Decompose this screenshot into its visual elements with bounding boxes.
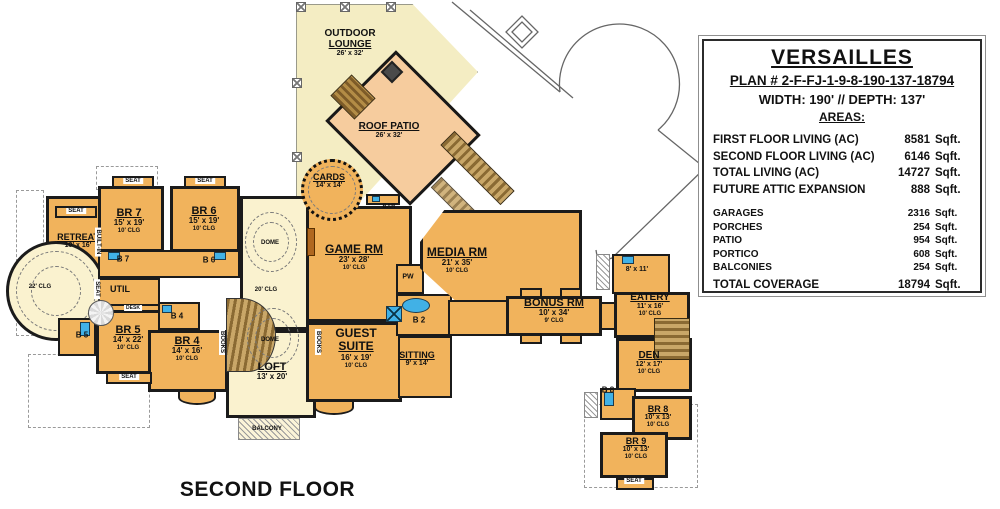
column-icon-1 [296, 2, 306, 12]
bay-seat-br7 [112, 176, 154, 188]
fixture-bath4-sink [162, 305, 172, 313]
area-row-total-living-ac-: TOTAL LIVING (AC)14727Sqft. [713, 165, 971, 182]
area-row-patio: PATIO954Sqft. [713, 234, 971, 248]
area-row-second-floor-living-ac-: SECOND FLOOR LIVING (AC)6146Sqft. [713, 149, 971, 166]
fixture-bath2-tub [402, 298, 430, 313]
stairs-right-wing [654, 318, 690, 360]
area-row-future-attic-expansion: FUTURE ATTIC EXPANSION888Sqft. [713, 182, 971, 199]
plan-title: VERSAILLES [713, 46, 971, 70]
plan-width-depth: WIDTH: 190' // DEPTH: 137' [713, 92, 971, 107]
column-icon-3 [386, 2, 396, 12]
room-kitchenette [612, 254, 670, 294]
area-row-first-floor-living-ac-: FIRST FLOOR LIVING (AC)8581Sqft. [713, 132, 971, 149]
floor-title: SECOND FLOOR [150, 478, 385, 502]
area-row-porches: PORCHES254Sqft. [713, 221, 971, 235]
cards-inner-ring [308, 166, 356, 214]
elevator-shaft [386, 306, 402, 322]
room-sitting [398, 336, 452, 398]
area-row-portico: PORTICO608Sqft. [713, 248, 971, 262]
column-icon-2 [340, 2, 350, 12]
fixture-bath5-tub [80, 322, 90, 336]
room-guest-suite [306, 322, 402, 402]
balcony-kitchenette [596, 254, 610, 290]
bonus-bay-bottom-1 [520, 334, 542, 344]
fixture-bath8-tub [604, 392, 614, 406]
room-br-9 [600, 432, 668, 478]
fixture-bath6-sink [214, 252, 226, 260]
room-br-6 [170, 186, 240, 252]
room-powder [396, 264, 424, 294]
fixture-bath7-sink [108, 252, 120, 260]
bay-seat-retreat [55, 206, 97, 218]
room-media-rm [420, 210, 582, 304]
fixture-kitchenette-sink [622, 256, 634, 264]
bonus-bay-bottom-2 [560, 334, 582, 344]
game-rm-cabinet [307, 228, 315, 256]
balcony-loft [238, 418, 300, 440]
spiral-staircase [88, 300, 114, 326]
room-bonus-rm [506, 296, 602, 336]
dome-ellipse-upper-inner [253, 222, 289, 262]
column-icon-5 [292, 152, 302, 162]
bay-arch-br4 [178, 390, 216, 405]
bay-seat-br9 [616, 478, 654, 490]
room-br-4 [148, 330, 228, 392]
plan-number: PLAN # 2-F-FJ-1-9-8-190-137-18794 [713, 73, 971, 88]
bay-seat-br5 [106, 372, 152, 384]
area-table: FIRST FLOOR LIVING (AC)8581Sqft.SECOND F… [713, 132, 971, 294]
dome-ellipse-lower-inner [255, 318, 291, 358]
balcony-bath-8 [584, 392, 598, 418]
fixture-bar-sink [372, 196, 380, 202]
hall-to-bonus [448, 300, 510, 336]
area-row-garages: GARAGES2316Sqft. [713, 207, 971, 221]
plan-info-box: VERSAILLES PLAN # 2-F-FJ-1-9-8-190-137-1… [698, 35, 986, 297]
bonus-bay-top-1 [520, 288, 542, 298]
bay-seat-br6 [184, 176, 226, 188]
area-row-balconies: BALCONIES254Sqft. [713, 261, 971, 275]
plan-info-box-frame: VERSAILLES PLAN # 2-F-FJ-1-9-8-190-137-1… [702, 39, 982, 293]
areas-heading: AREAS: [713, 110, 971, 124]
area-row-total-coverage: TOTAL COVERAGE18794Sqft. [713, 277, 971, 294]
column-icon-4 [292, 78, 302, 88]
bay-arch-guest [314, 400, 354, 415]
floor-plan-page: { "floor_label": "SECOND FLOOR", "colors… [0, 0, 1000, 509]
room-bath-5 [58, 318, 96, 356]
tower-ring-inner [31, 266, 81, 316]
bonus-bay-top-2 [560, 288, 582, 298]
room-br-7 [98, 186, 164, 252]
